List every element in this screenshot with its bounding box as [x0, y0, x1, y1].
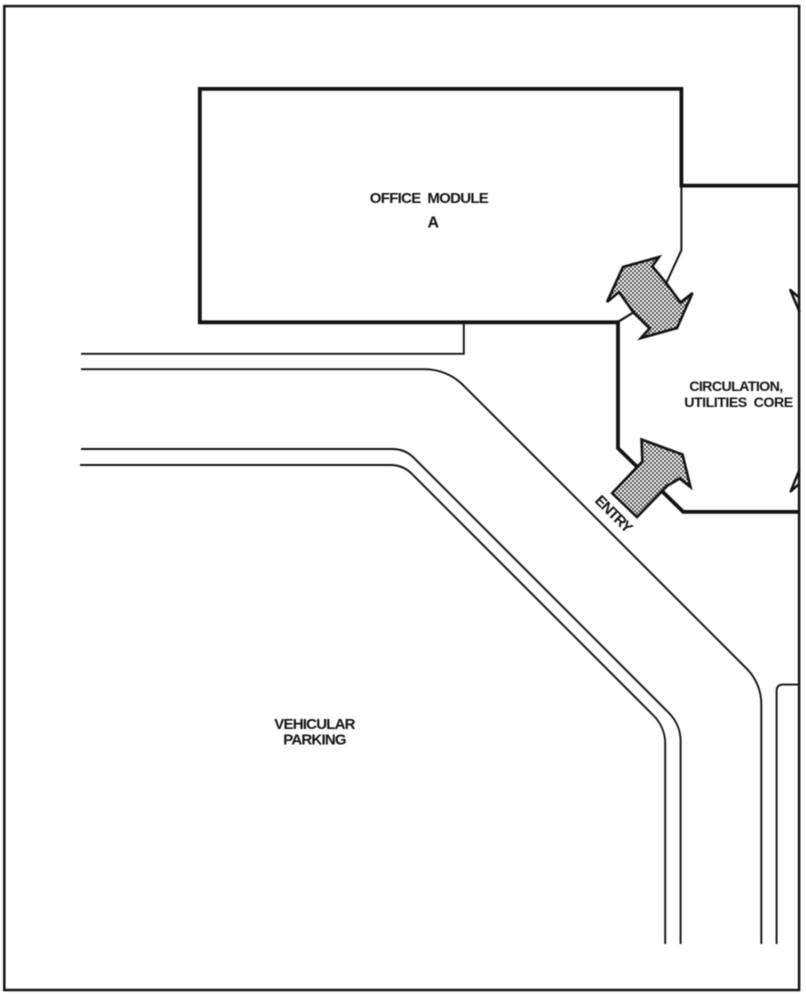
svg-text:CIRCULATION,: CIRCULATION,	[689, 379, 783, 395]
svg-text:OFFICE MODULE: OFFICE MODULE	[370, 190, 489, 207]
svg-text:A: A	[428, 215, 440, 232]
svg-text:UTILITIES CORE: UTILITIES CORE	[684, 395, 793, 411]
svg-text:PARKING: PARKING	[283, 732, 346, 749]
svg-text:VEHICULAR: VEHICULAR	[274, 716, 355, 733]
